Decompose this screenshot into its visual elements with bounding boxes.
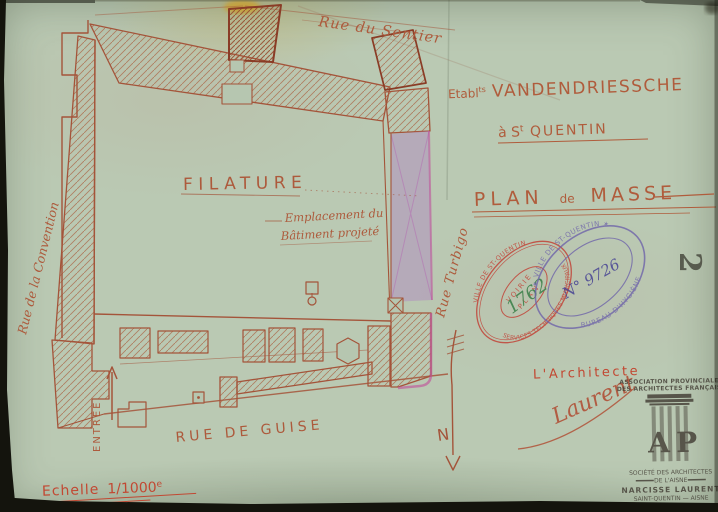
city-subtitle: à St QUENTIN bbox=[498, 121, 608, 141]
entrance-label: ENTRÉE bbox=[90, 401, 103, 453]
svg-text:P: P bbox=[676, 426, 698, 459]
association-line6: SAINT-QUENTIN — AISNE bbox=[634, 495, 709, 503]
north-arrow bbox=[446, 330, 464, 470]
establishment-title: EtabltsVANDENDRIESSCHE bbox=[448, 75, 684, 103]
city-underline bbox=[498, 139, 648, 143]
annotation-line2: Bâtiment projeté bbox=[279, 224, 379, 243]
association-column-logo: A P bbox=[645, 394, 697, 462]
building-plan bbox=[52, 5, 464, 470]
annotation-line1: Emplacement du bbox=[283, 206, 383, 225]
association-line2: DES ARCHITECTES FRANÇAIS bbox=[617, 384, 718, 393]
association-line5: NARCISSE LAURENT bbox=[621, 484, 718, 495]
plan-title: PLANdeMASSE bbox=[474, 182, 677, 211]
site-plan-svg: Rue du Sentier Rue de la Convention Rue … bbox=[0, 0, 718, 512]
north-label: N bbox=[436, 424, 450, 444]
street-label-bottom: RUE DE GUISE bbox=[175, 417, 324, 446]
street-label-left: Rue de la Convention bbox=[14, 200, 62, 336]
building-label: FILATURE bbox=[183, 173, 308, 195]
association-line4: DE L'AISNE bbox=[654, 477, 688, 485]
title-block: EtabltsVANDENDRIESSCHE à St QUENTIN PLAN… bbox=[448, 75, 716, 217]
drawing-sheet: Rue du Sentier Rue de la Convention Rue … bbox=[0, 0, 718, 512]
svg-text:A: A bbox=[647, 426, 672, 459]
street-label-right: Rue Turbigo bbox=[433, 225, 472, 320]
sheet-number-stamp: 2 bbox=[672, 252, 707, 273]
association-line3: SOCIÉTÉ DES ARCHITECTES bbox=[629, 467, 712, 476]
